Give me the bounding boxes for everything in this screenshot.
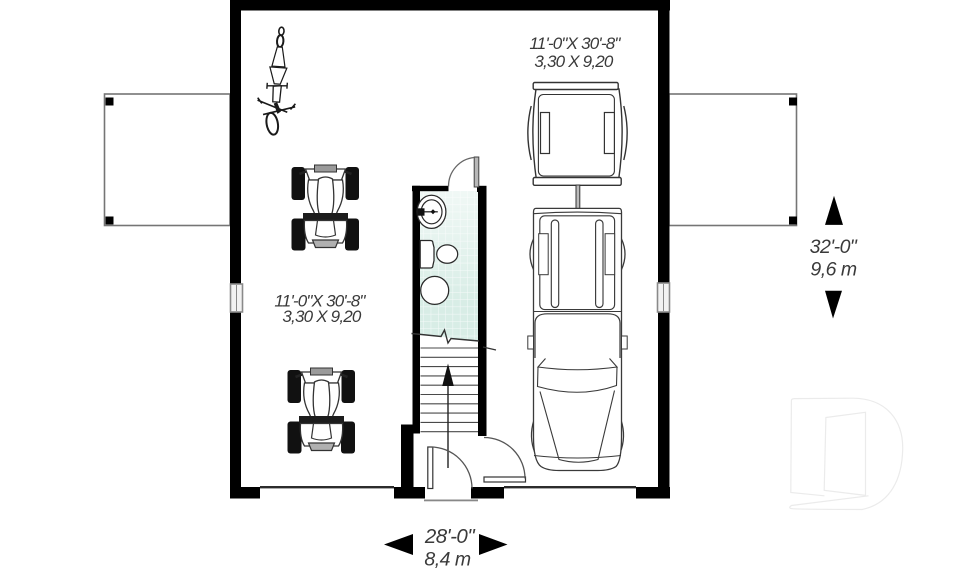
svg-text:32'-0": 32'-0"	[810, 236, 858, 258]
svg-text:28'-0": 28'-0"	[424, 525, 476, 548]
svg-text:11'-0"X 30'-8": 11'-0"X 30'-8"	[529, 34, 621, 53]
svg-text:3,30 X 9,20: 3,30 X 9,20	[534, 52, 614, 71]
svg-text:3,30 X 9,20: 3,30 X 9,20	[282, 307, 362, 326]
svg-text:8,4 m: 8,4 m	[424, 549, 471, 569]
svg-text:9,6 m: 9,6 m	[810, 259, 857, 281]
